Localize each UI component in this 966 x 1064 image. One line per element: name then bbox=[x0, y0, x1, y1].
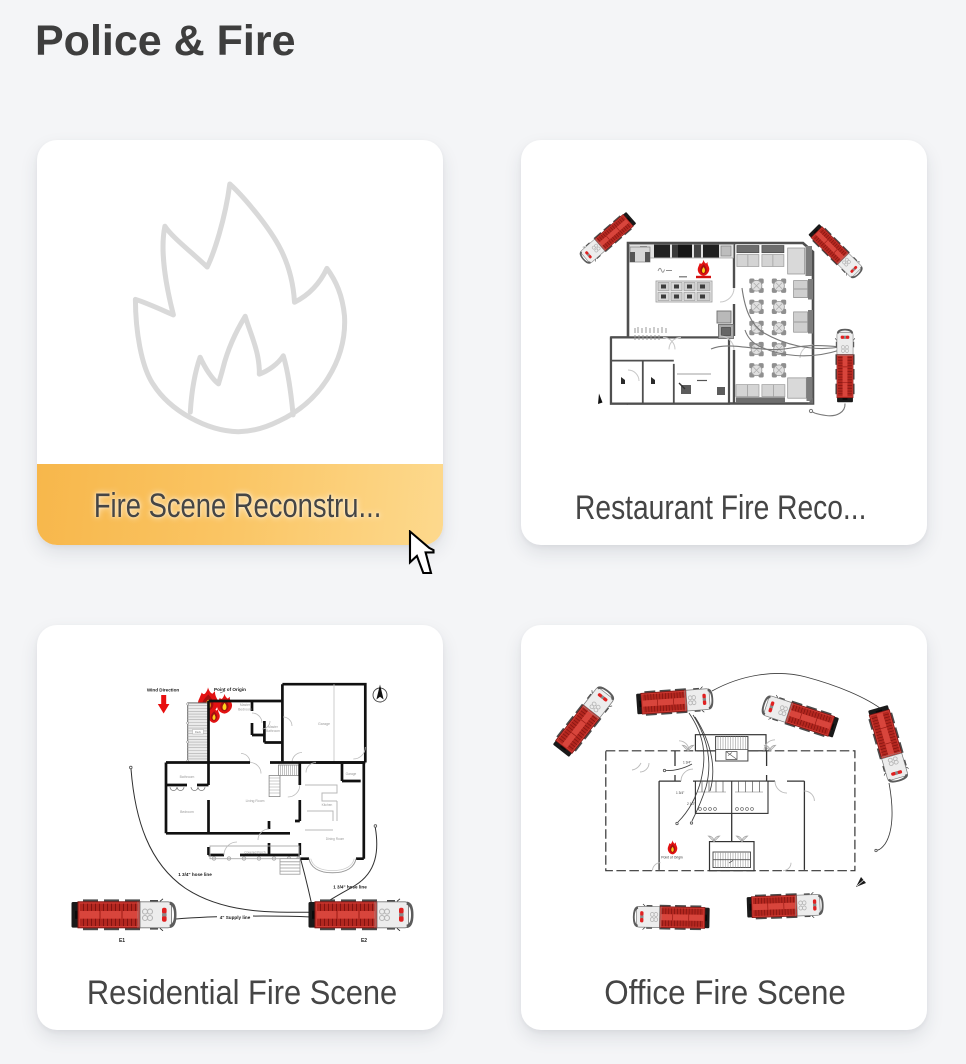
svg-text:Bathroom: Bathroom bbox=[180, 775, 195, 779]
svg-text:Garage: Garage bbox=[318, 722, 330, 726]
svg-text:E2: E2 bbox=[361, 938, 367, 944]
svg-text:Bathroom: Bathroom bbox=[266, 729, 280, 733]
svg-text:Dining Room: Dining Room bbox=[326, 837, 345, 841]
svg-text:Covered Porch: Covered Porch bbox=[244, 851, 265, 855]
svg-text:1 3/4": 1 3/4" bbox=[676, 791, 684, 795]
svg-text:1 3/4" hose line: 1 3/4" hose line bbox=[178, 872, 212, 877]
svg-text:Deck: Deck bbox=[195, 730, 202, 734]
svg-text:Wind Direction: Wind Direction bbox=[147, 688, 180, 693]
svg-text:1 3/4" hose line: 1 3/4" hose line bbox=[333, 885, 367, 890]
svg-text:1 3/4": 1 3/4" bbox=[683, 761, 691, 765]
svg-text:Master: Master bbox=[240, 703, 251, 707]
svg-text:Bedroom: Bedroom bbox=[238, 708, 252, 712]
svg-text:Garage: Garage bbox=[346, 772, 357, 776]
svg-text:4" Supply line: 4" Supply line bbox=[220, 915, 251, 920]
svg-text:Point of Origin: Point of Origin bbox=[214, 687, 246, 692]
svg-text:Bedroom: Bedroom bbox=[180, 810, 194, 814]
svg-text:E1: E1 bbox=[119, 938, 125, 944]
svg-text:Living Room: Living Room bbox=[246, 799, 265, 803]
svg-text:Point of Origin: Point of Origin bbox=[661, 856, 683, 860]
svg-text:Kitchen: Kitchen bbox=[322, 803, 333, 807]
